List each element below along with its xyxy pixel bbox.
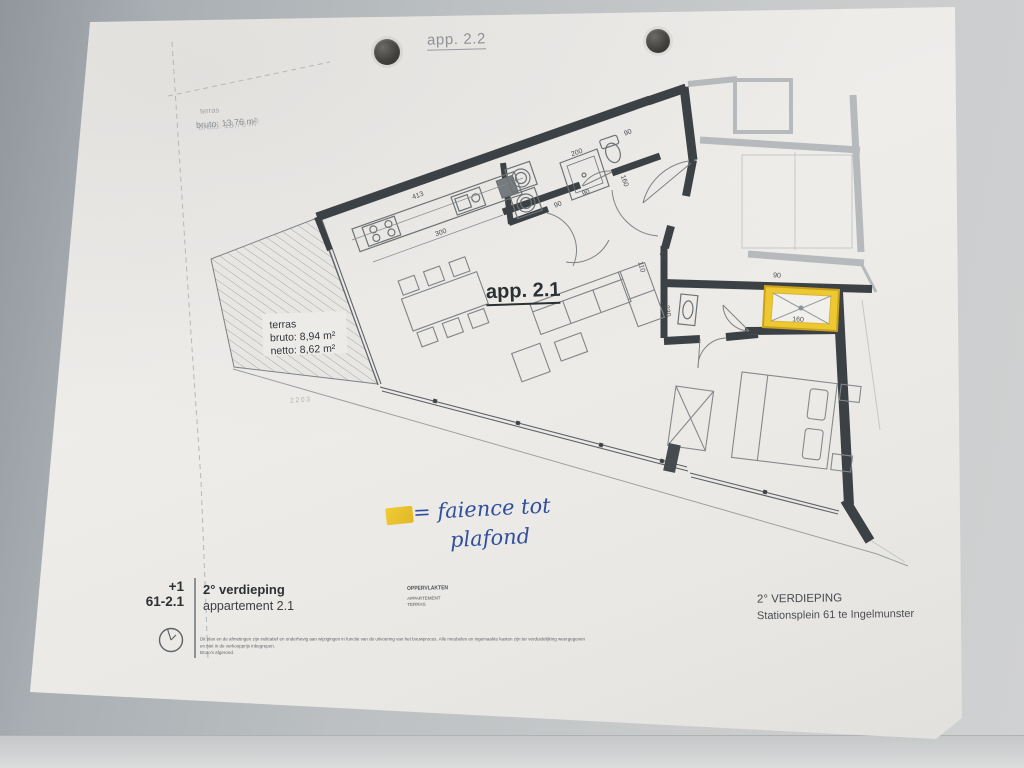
terrace-label: terras bruto: 8,94 m² netto: 8,62 m² — [269, 317, 336, 359]
disclaimer-text: Dit plan en de afmetingen zijn indicatie… — [200, 636, 590, 656]
punch-hole-icon — [374, 39, 400, 65]
faint-street-mark: 2203 — [290, 396, 312, 404]
table-edge — [0, 735, 1024, 768]
apartment-22-label: app. 2.2 — [427, 30, 486, 51]
plan-code: 61-2.1 — [130, 594, 184, 609]
handwriting-line-2: plafond — [449, 524, 530, 552]
punch-hole-icon — [646, 29, 670, 53]
apartment-21-label: app. 2.1 — [486, 279, 561, 307]
dimension-label: 90 — [773, 272, 781, 279]
photo-backdrop: app. 2.2 app. 2.1 terras bruto: 8,94 m² … — [0, 0, 1024, 768]
areas-header: OPPERVLAKTEN — [407, 584, 517, 591]
level-code: +1 — [130, 579, 184, 594]
areas-block: OPPERVLAKTEN APPARTEMENT TERRAS — [407, 584, 517, 608]
title-block-divider — [194, 578, 196, 658]
plan-title: 2° verdieping — [203, 582, 285, 597]
faint-terrace-title: terras — [200, 105, 220, 115]
location-title: 2° VERDIEPING — [757, 592, 842, 605]
location-subtitle: Stationsplein 61 te Ingelmunster — [757, 608, 914, 622]
disclaimer-line-1: Dit plan en de afmetingen zijn indicatie… — [200, 636, 590, 650]
disclaimer-line-2: Bruto's afgerond. — [200, 650, 590, 657]
highlight-swatch-icon — [385, 506, 414, 526]
dimension-label: 160 — [792, 316, 804, 324]
plan-subtitle: appartement 2.1 — [203, 599, 294, 613]
